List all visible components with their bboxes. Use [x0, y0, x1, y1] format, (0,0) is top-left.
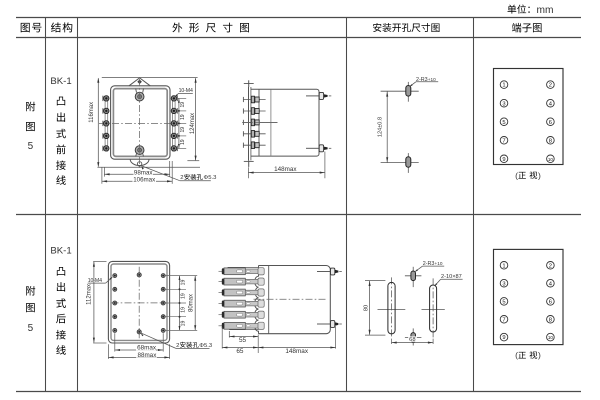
svg-text:3: 3 [502, 101, 505, 107]
svg-text:116max: 116max [89, 102, 95, 123]
svg-text:2: 2 [176, 343, 179, 349]
svg-text:124±0.8: 124±0.8 [377, 117, 383, 137]
svg-text:(: ( [515, 170, 518, 180]
svg-text:6: 6 [549, 300, 552, 306]
svg-text:5: 5 [502, 300, 505, 306]
svg-text:5: 5 [28, 141, 34, 152]
svg-text:10: 10 [548, 335, 554, 340]
svg-text:3: 3 [502, 281, 505, 287]
svg-text:8: 8 [549, 138, 552, 144]
svg-text:80: 80 [363, 305, 369, 311]
svg-text:19: 19 [180, 127, 186, 133]
svg-text:2: 2 [180, 175, 183, 181]
svg-text:5: 5 [502, 120, 505, 126]
svg-text:19: 19 [180, 139, 186, 145]
svg-text:19: 19 [181, 280, 187, 286]
svg-text:6: 6 [549, 120, 552, 126]
svg-text:19: 19 [181, 293, 187, 299]
svg-text:1: 1 [502, 83, 505, 89]
svg-text:124max: 124max [190, 113, 196, 134]
svg-text:9: 9 [502, 335, 505, 341]
svg-text:19: 19 [181, 321, 187, 327]
svg-text:BK-1: BK-1 [50, 76, 71, 87]
svg-text:): ) [538, 170, 541, 180]
svg-text:9: 9 [502, 157, 505, 163]
svg-text:68max: 68max [137, 345, 157, 352]
svg-text:Φ5.3: Φ5.3 [204, 175, 218, 181]
svg-text:mm: mm [537, 5, 554, 16]
svg-text:19: 19 [180, 114, 186, 120]
svg-text:2: 2 [549, 83, 552, 89]
svg-text:7: 7 [502, 317, 505, 323]
svg-text:BK-1: BK-1 [50, 246, 71, 257]
svg-text:88max: 88max [137, 352, 157, 359]
svg-text:10: 10 [548, 157, 554, 162]
svg-text:65: 65 [236, 348, 244, 355]
svg-text:8: 8 [549, 317, 552, 323]
svg-text:5: 5 [28, 323, 34, 334]
svg-text:80max: 80max [189, 294, 195, 312]
svg-text:2: 2 [549, 263, 552, 269]
svg-text:): ) [538, 350, 541, 360]
svg-text:148max: 148max [274, 166, 297, 173]
svg-text:(: ( [515, 350, 518, 360]
svg-text:+10: +10 [428, 77, 436, 82]
svg-text:19: 19 [180, 102, 186, 108]
svg-text:112max: 112max [86, 284, 92, 305]
svg-text:7: 7 [502, 138, 505, 144]
svg-text:98max: 98max [134, 170, 153, 177]
svg-text:68: 68 [409, 337, 415, 343]
svg-text:148max: 148max [285, 348, 309, 355]
svg-text:+10: +10 [435, 261, 443, 266]
svg-text:Φ5.3: Φ5.3 [199, 343, 213, 349]
svg-text:55: 55 [239, 337, 247, 344]
svg-text:1: 1 [502, 263, 505, 269]
svg-text:19: 19 [181, 307, 187, 313]
svg-text:106max: 106max [133, 177, 156, 184]
